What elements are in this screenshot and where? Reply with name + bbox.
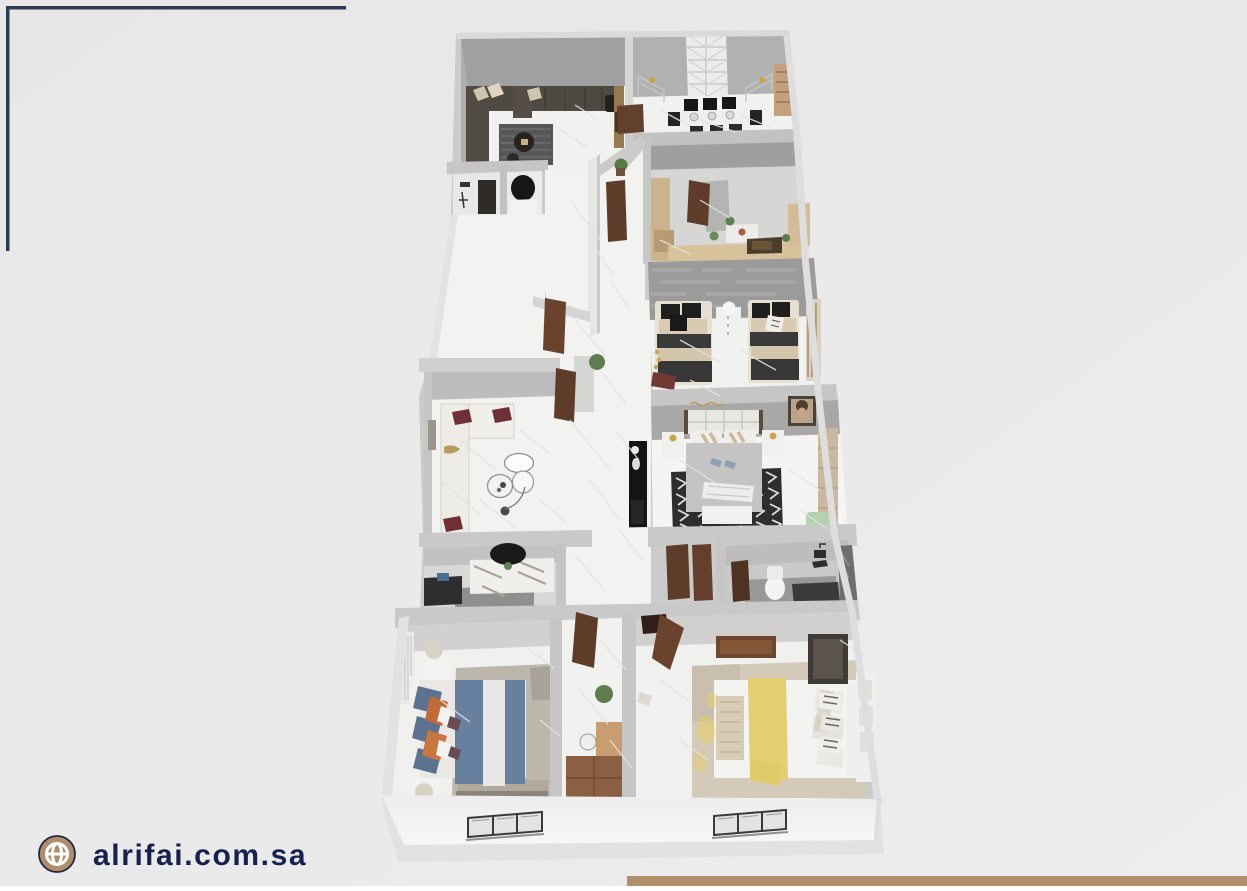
svg-text:alrifai.com.sa: alrifai.com.sa: [93, 839, 307, 872]
